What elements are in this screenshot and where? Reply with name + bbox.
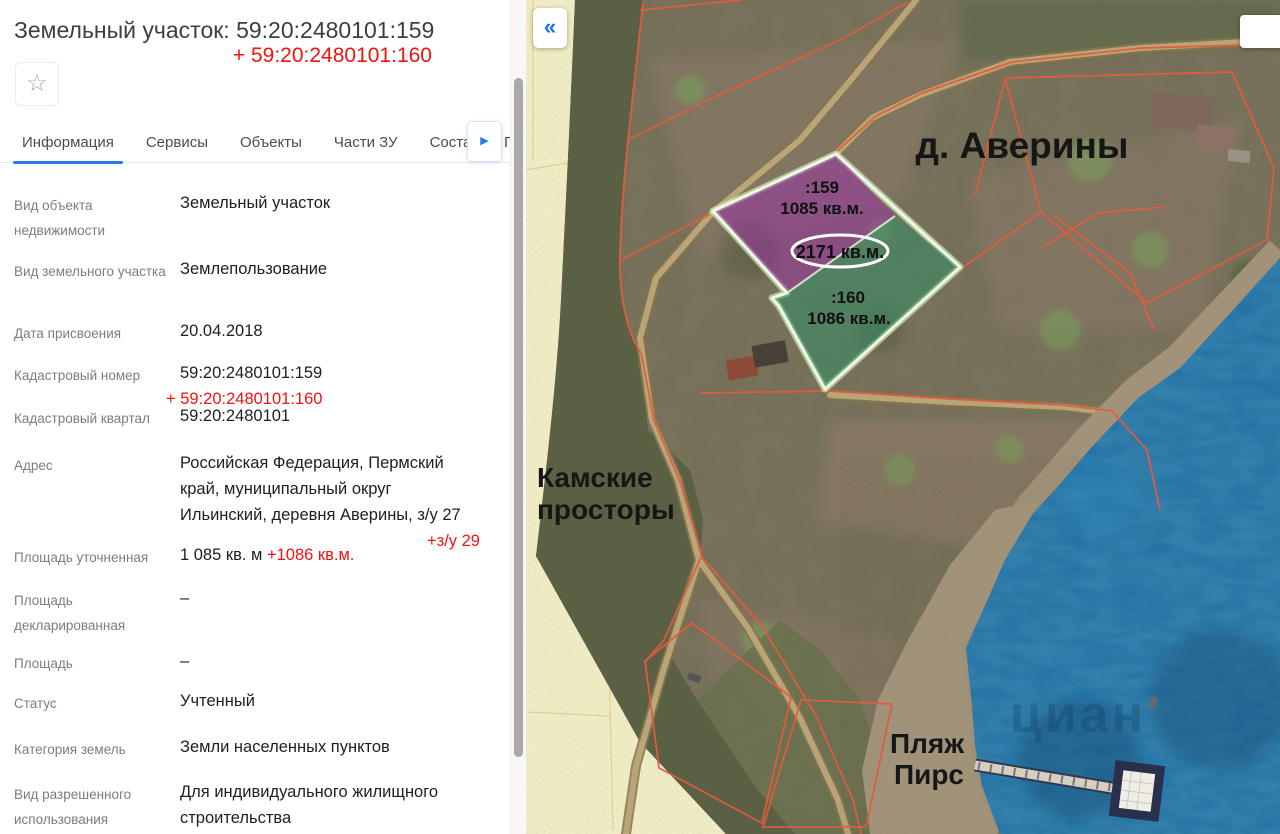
field-label: Площадь уточненная [14, 542, 180, 570]
parcel-160-area-label: 1086 кв.м. [807, 309, 891, 328]
field-label: Площадь декларированная [14, 585, 180, 638]
field-value: Землепользование [180, 256, 480, 284]
info-row: Вид земельного участкаЗемлепользование [14, 256, 480, 284]
info-rows: Вид объекта недвижимостиЗемельный участо… [0, 0, 510, 834]
field-value: Российская Федерация, Пермский край, мун… [180, 450, 480, 554]
place-label-line2: просторы [537, 494, 675, 525]
field-value: 1 085 кв. м +1086 кв.м. [180, 542, 480, 570]
map-control-box[interactable] [1240, 15, 1280, 48]
field-value: 20.04.2018 [180, 318, 480, 346]
field-label: Площадь [14, 648, 180, 676]
app-window: Земельный участок: 59:20:2480101:159 + 5… [0, 0, 1280, 834]
collapse-panel-button[interactable]: « [533, 8, 567, 48]
field-label: Дата присвоения [14, 318, 180, 346]
satellite-map: :159 1085 кв.м. 2171 кв.м. :160 1086 кв.… [526, 0, 1280, 834]
field-value: Земельный участок [180, 190, 480, 243]
field-value: Земли населенных пунктов [180, 734, 480, 762]
field-label: Кадастровый квартал [14, 403, 180, 431]
field-value: – [180, 648, 480, 676]
place-label-line1: Камские [537, 462, 653, 493]
field-value: – [180, 585, 480, 638]
parcel-160-id-label: :160 [831, 288, 865, 307]
beach-label: Пляж [890, 728, 965, 759]
info-row: СтатусУчтенный [14, 688, 480, 716]
info-panel: Земельный участок: 59:20:2480101:159 + 5… [0, 0, 510, 834]
info-row: Категория земельЗемли населенных пунктов [14, 734, 480, 762]
map-viewport[interactable]: :159 1085 кв.м. 2171 кв.м. :160 1086 кв.… [526, 0, 1280, 834]
info-row: Кадастровый квартал59:20:2480101 [14, 403, 480, 431]
parcel-159-area-label: 1085 кв.м. [780, 199, 864, 218]
field-value-addition: +1086 кв.м. [267, 546, 354, 564]
field-value: Для индивидуального жилищного строительс… [180, 779, 480, 832]
field-label: Категория земель [14, 734, 180, 762]
info-row: Площадь– [14, 648, 480, 676]
field-label: Адрес [14, 450, 180, 554]
field-label: Статус [14, 688, 180, 716]
pier-label: Пирс [894, 759, 964, 790]
info-row: Площадь декларированная– [14, 585, 480, 638]
scrollbar-thumb[interactable] [514, 78, 523, 757]
panel-scrollbar[interactable] [510, 0, 526, 834]
info-row: Площадь уточненная1 085 кв. м +1086 кв.м… [14, 542, 480, 570]
parcel-159-id-label: :159 [805, 178, 839, 197]
info-row: АдресРоссийская Федерация, Пермский край… [14, 450, 480, 554]
field-label: Вид объекта недвижимости [14, 190, 180, 243]
field-value: 59:20:2480101 [180, 403, 480, 431]
field-label: Вид земельного участка [14, 256, 180, 284]
field-label: Вид разрешенного использования [14, 779, 180, 832]
total-area-label: 2171 кв.м. [796, 242, 884, 262]
village-label: д. Аверины [916, 125, 1129, 166]
info-row: Дата присвоения20.04.2018 [14, 318, 480, 346]
chevrons-left-icon: « [544, 14, 556, 39]
info-row: Вид объекта недвижимостиЗемельный участо… [14, 190, 480, 243]
watermark: циан [1010, 686, 1146, 744]
info-row: Вид разрешенного использованияДля индиви… [14, 779, 480, 832]
field-value: Учтенный [180, 688, 480, 716]
